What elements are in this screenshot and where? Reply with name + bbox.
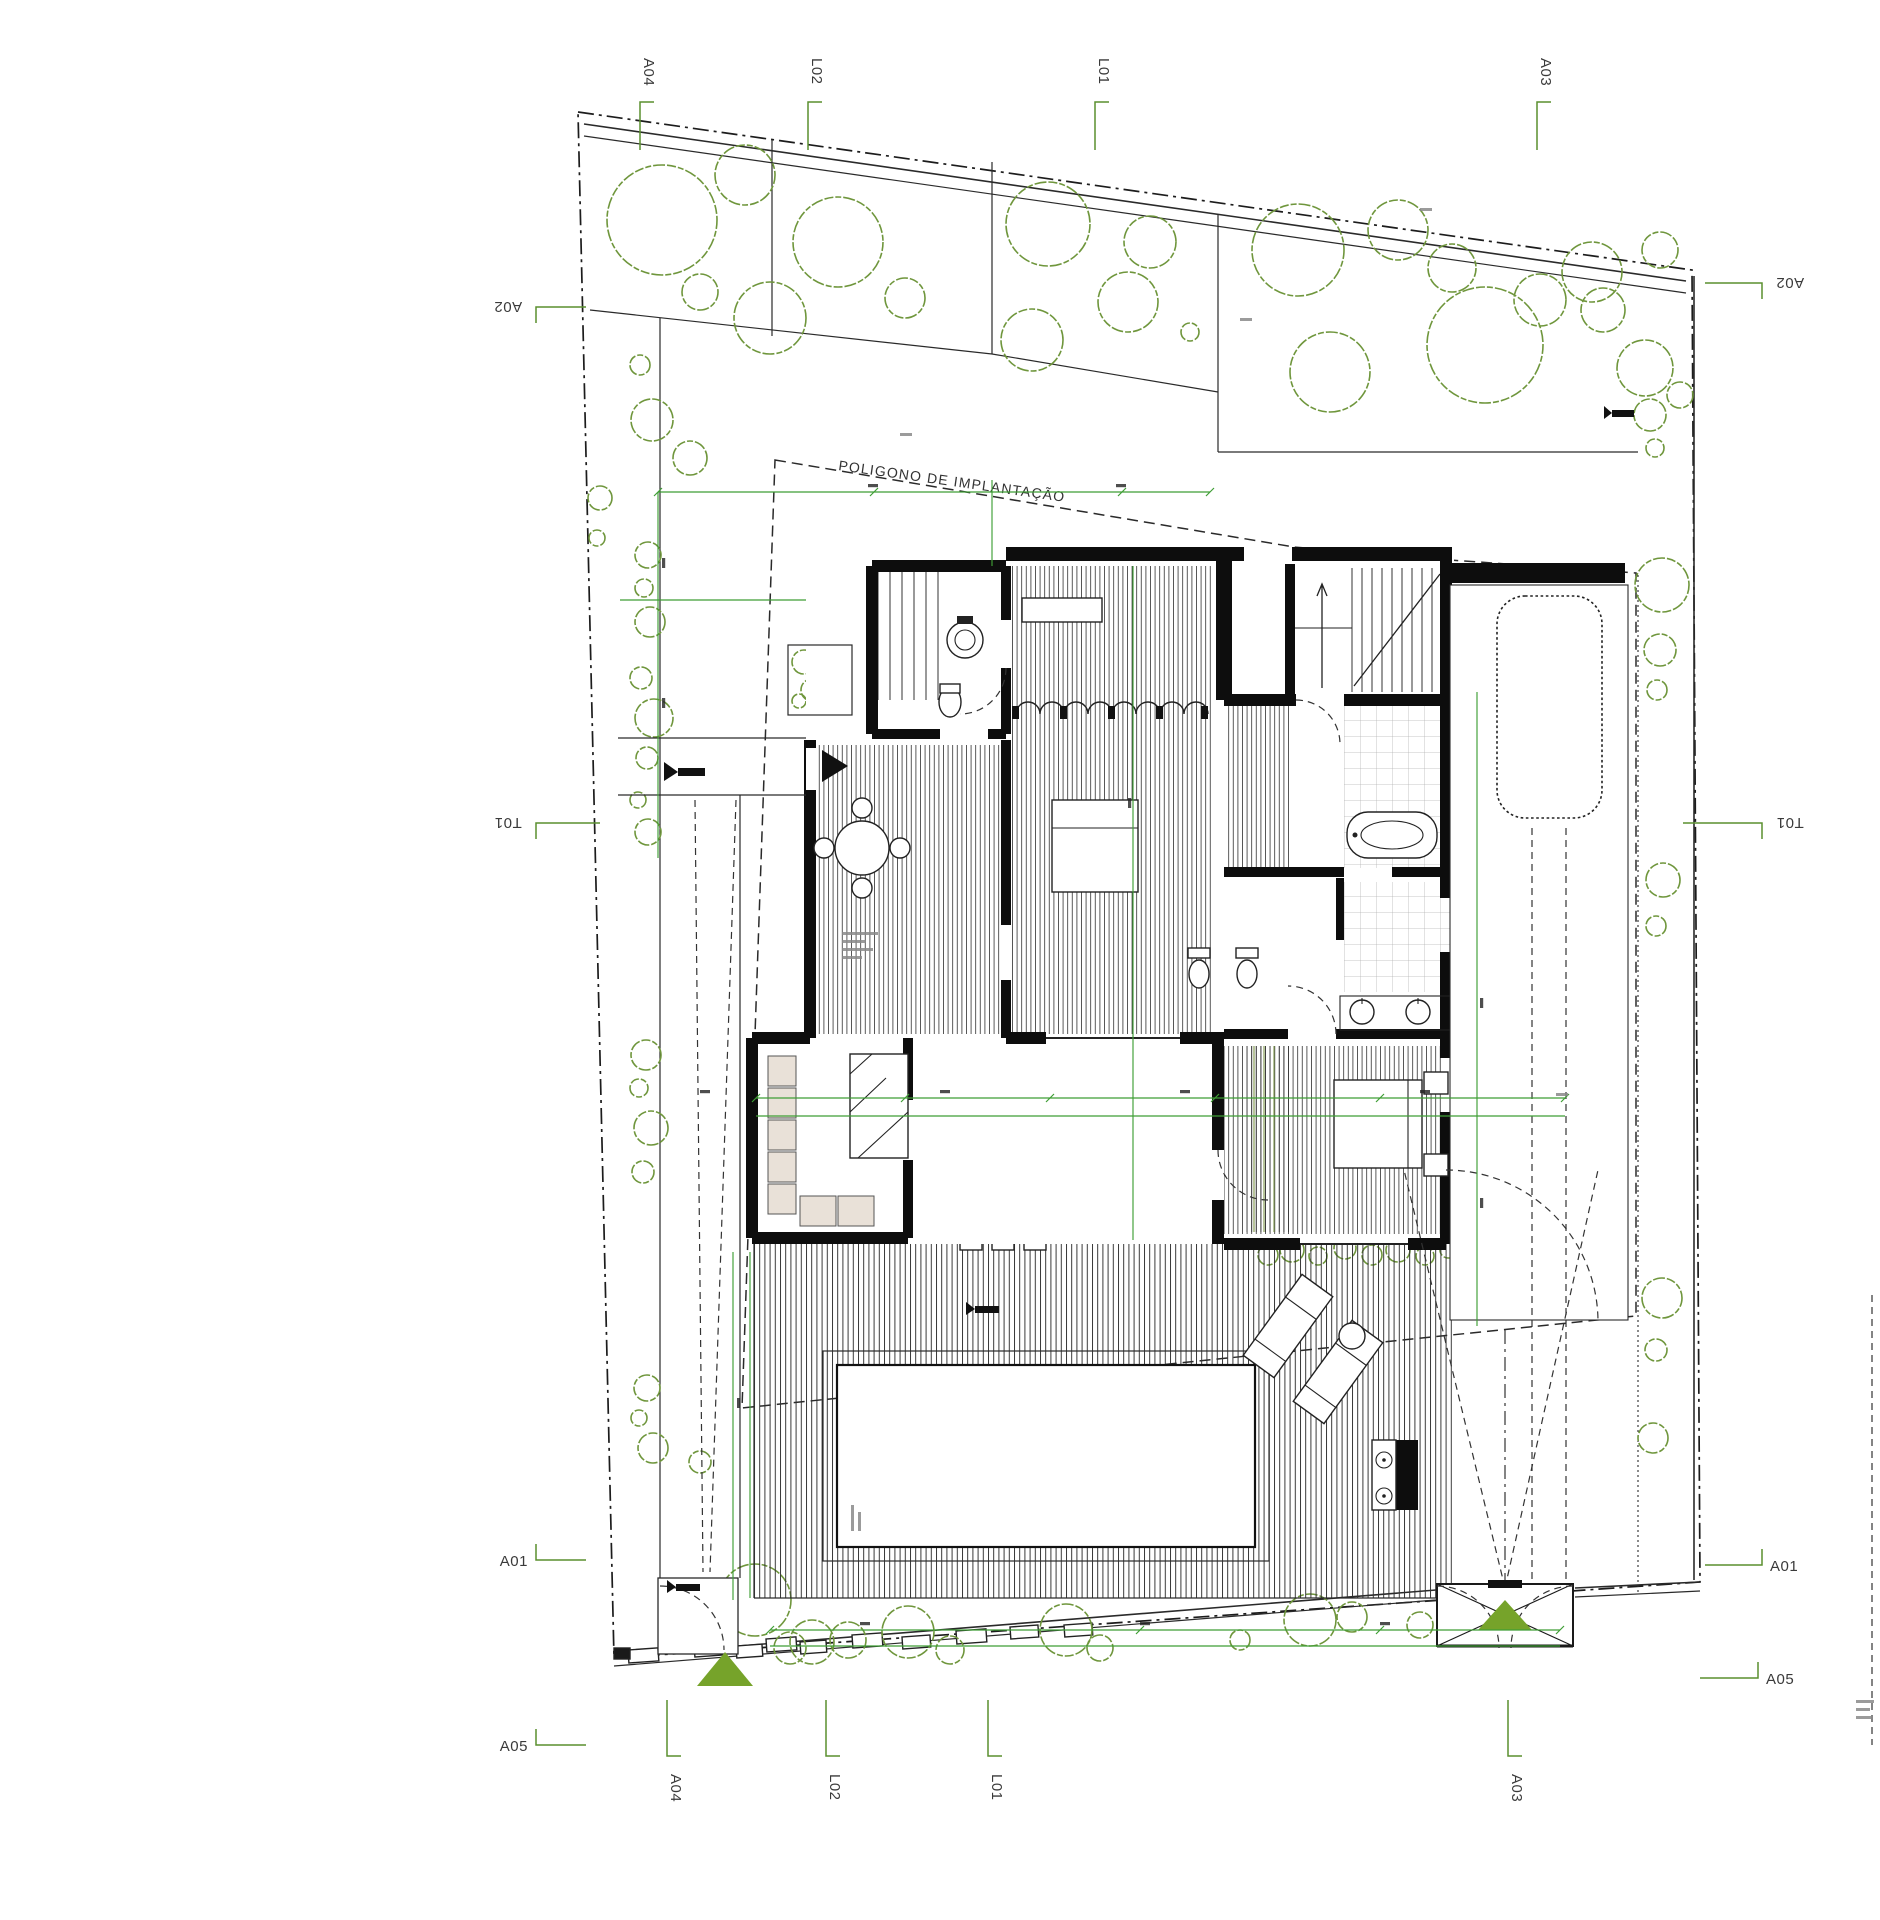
- level-marker: [1604, 406, 1634, 419]
- tree: [1647, 680, 1667, 700]
- corridor-floor: [1228, 706, 1290, 868]
- section-marker-left-a05: A05: [500, 1729, 586, 1755]
- svg-text:A05: A05: [500, 1738, 528, 1755]
- tree: [1368, 200, 1428, 260]
- tree: [635, 579, 653, 597]
- svg-text:L01: L01: [988, 1774, 1005, 1801]
- poligono-label: POLIGONO DE IMPLANTAÇÃO: [838, 457, 1067, 505]
- tree: [631, 1040, 661, 1070]
- tree: [673, 441, 707, 475]
- tree: [1290, 332, 1370, 412]
- tree: [1644, 634, 1676, 666]
- path-edge: [710, 800, 736, 1572]
- svg-text:A03: A03: [1537, 58, 1554, 86]
- tree: [630, 1079, 648, 1097]
- svg-text:A03: A03: [1508, 1774, 1525, 1802]
- tree: [632, 1161, 654, 1183]
- tree: [682, 274, 718, 310]
- tree: [1667, 382, 1693, 408]
- tree: [631, 399, 673, 441]
- tree: [1646, 439, 1664, 457]
- tree: [1646, 863, 1680, 897]
- section-marker-bottom-l01: L01: [988, 1700, 1005, 1801]
- tree: [1642, 1278, 1682, 1318]
- tree: [715, 145, 775, 205]
- tree: [1181, 323, 1199, 341]
- bush: [792, 694, 806, 708]
- svg-text:T01: T01: [1776, 814, 1803, 831]
- svg-text:L01: L01: [1095, 58, 1112, 85]
- tree: [1634, 399, 1666, 431]
- wardrobe: [1246, 1046, 1290, 1232]
- tree: [1646, 916, 1666, 936]
- garden-division-lines: [590, 140, 1638, 452]
- section-marker-top-a03: A03: [1537, 58, 1554, 150]
- level-marker: [664, 762, 705, 781]
- section-marker-left-a02: A02: [494, 298, 586, 323]
- side-table: [1339, 1323, 1365, 1349]
- tree: [1001, 309, 1063, 371]
- tree: [630, 355, 650, 375]
- tree: [638, 1433, 668, 1463]
- outdoor-shower-unit: [1372, 1440, 1418, 1510]
- svg-text:L02: L02: [808, 58, 825, 85]
- plan-sheet: POLIGONO DE IMPLANTAÇÃO: [0, 0, 1880, 1920]
- main-gate: [1437, 1580, 1573, 1648]
- section-marker-top-a04: A04: [640, 58, 657, 150]
- svg-text:A04: A04: [640, 58, 657, 86]
- tree: [1252, 204, 1344, 296]
- tree: [1562, 242, 1622, 302]
- sheet-edge-fragment: [1856, 1295, 1874, 1745]
- tree: [1230, 1630, 1250, 1650]
- section-marker-left-t01: T01: [494, 814, 600, 839]
- tree: [1645, 1339, 1667, 1361]
- swimming-pool: [837, 1365, 1255, 1547]
- tree: [1284, 1594, 1336, 1646]
- tree: [1428, 244, 1476, 292]
- tree: [635, 542, 661, 568]
- tree: [1638, 1423, 1668, 1453]
- tree: [1407, 1612, 1433, 1638]
- section-marker-top-l02: L02: [808, 58, 825, 150]
- tree: [885, 278, 925, 318]
- bathtub: [1347, 812, 1437, 858]
- tree: [1642, 232, 1678, 268]
- street-wall-top-outer: [584, 124, 1686, 281]
- tree: [634, 1111, 668, 1145]
- tree: [630, 667, 652, 689]
- section-marker-bottom-a04: A04: [667, 1700, 684, 1802]
- sofa: [1052, 800, 1138, 892]
- tree: [1635, 558, 1689, 612]
- svg-text:A01: A01: [1770, 1558, 1798, 1575]
- section-marker-bottom-l02: L02: [826, 1700, 843, 1801]
- nightstand: [1424, 1154, 1448, 1176]
- tree: [1617, 340, 1673, 396]
- section-marker-right-a02: A02: [1705, 274, 1804, 299]
- tree: [635, 699, 673, 737]
- tree: [589, 530, 605, 546]
- tree: [634, 1375, 660, 1401]
- tree: [636, 747, 658, 769]
- tree: [793, 197, 883, 287]
- kitchen-island: [850, 1054, 908, 1158]
- carport-wall: [1448, 563, 1625, 583]
- svg-text:A02: A02: [1776, 274, 1804, 291]
- path-edge: [695, 800, 703, 1572]
- tree: [1581, 288, 1625, 332]
- section-marker-left-a01: A01: [500, 1544, 586, 1570]
- tree: [734, 282, 806, 354]
- breakfast-room-floor: [816, 745, 1002, 1034]
- svg-text:A04: A04: [667, 1774, 684, 1802]
- section-marker-right-a01: A01: [1705, 1549, 1798, 1575]
- street-wall-top-inner: [584, 136, 1686, 293]
- tree: [588, 486, 612, 510]
- site-plan-drawing: POLIGONO DE IMPLANTAÇÃO: [0, 0, 1880, 1920]
- tree: [689, 1451, 711, 1473]
- tree: [1098, 272, 1158, 332]
- house: [618, 548, 1454, 1244]
- bathroom2-floor: [1344, 882, 1452, 992]
- entry-door-gap: [806, 748, 816, 790]
- tree: [1124, 216, 1176, 268]
- svg-text:L02: L02: [826, 1774, 843, 1801]
- tree: [607, 165, 717, 275]
- svg-text:A01: A01: [500, 1553, 528, 1570]
- tree: [635, 819, 661, 845]
- tree: [1427, 287, 1543, 403]
- tv-bench: [1022, 598, 1102, 622]
- svg-text:A05: A05: [1766, 1671, 1794, 1688]
- section-marker-right-t01: T01: [1683, 814, 1804, 839]
- section-marker-bottom-a03: A03: [1508, 1700, 1525, 1802]
- svg-text:T01: T01: [494, 814, 521, 831]
- svg-text:A02: A02: [494, 298, 522, 315]
- section-marker-right-a05: A05: [1700, 1662, 1794, 1688]
- tree: [631, 1410, 647, 1426]
- section-marker-top-l01: L01: [1095, 58, 1112, 150]
